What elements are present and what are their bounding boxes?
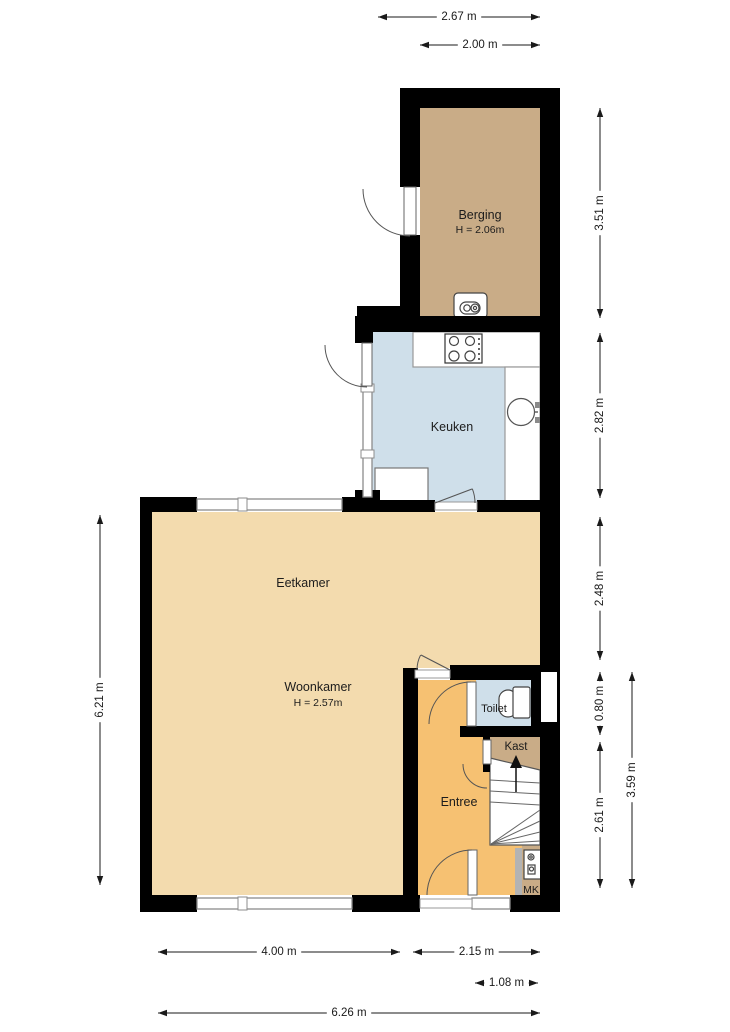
floor-plan-svg: BergingH = 2.06mKeukenEetkamerWoonkamerH… <box>0 0 730 1032</box>
wall-recess <box>541 672 557 722</box>
door-swing-arc <box>363 189 410 236</box>
kitchen-cabinet <box>375 468 428 505</box>
window <box>361 384 374 497</box>
dimension-label: 2.15 m <box>459 946 494 958</box>
dimension-label: 3.51 m <box>594 195 606 230</box>
door-leaf <box>362 343 372 386</box>
floor-plan: BergingH = 2.06mKeukenEetkamerWoonkamerH… <box>0 0 730 1032</box>
mk-label: MK <box>523 884 539 896</box>
dimension-label: 2.00 m <box>462 39 497 51</box>
kitchen-counter-right <box>505 367 540 504</box>
door-leaf <box>467 682 476 726</box>
dimension-label: 6.26 m <box>331 1007 366 1019</box>
dimension-label: 2.82 m <box>594 398 606 433</box>
dimension-label: 0.80 m <box>594 686 606 721</box>
door-swing-arc <box>325 345 367 387</box>
woonkamer-label: Woonkamer <box>284 680 351 694</box>
dimension-label: 6.21 m <box>94 682 106 717</box>
keuken-label: Keuken <box>431 420 473 434</box>
boiler <box>454 293 487 318</box>
door-leaf <box>468 850 477 895</box>
dimension-label: 2.67 m <box>441 11 476 23</box>
kast-label: Kast <box>504 741 528 753</box>
berging-label: Berging <box>458 208 501 222</box>
window <box>472 898 510 909</box>
window <box>197 897 352 910</box>
door-leaf <box>483 740 491 764</box>
sink <box>508 399 543 426</box>
stove <box>445 334 482 363</box>
berging-height: H = 2.06m <box>456 224 505 236</box>
dimension-label: 3.59 m <box>626 762 638 797</box>
entree-label: Entree <box>441 795 478 809</box>
woonkamer-height: H = 2.57m <box>294 697 343 709</box>
staircase <box>490 755 540 845</box>
eetkamer-label: Eetkamer <box>276 576 330 590</box>
dimension-label: 2.61 m <box>594 797 606 832</box>
window <box>197 498 342 511</box>
dimension-label: 1.08 m <box>489 977 524 989</box>
door-leaf <box>404 187 416 235</box>
dimension-label: 4.00 m <box>261 946 296 958</box>
dimension-label: 2.48 m <box>594 571 606 606</box>
toilet-label: Toilet <box>481 703 507 715</box>
